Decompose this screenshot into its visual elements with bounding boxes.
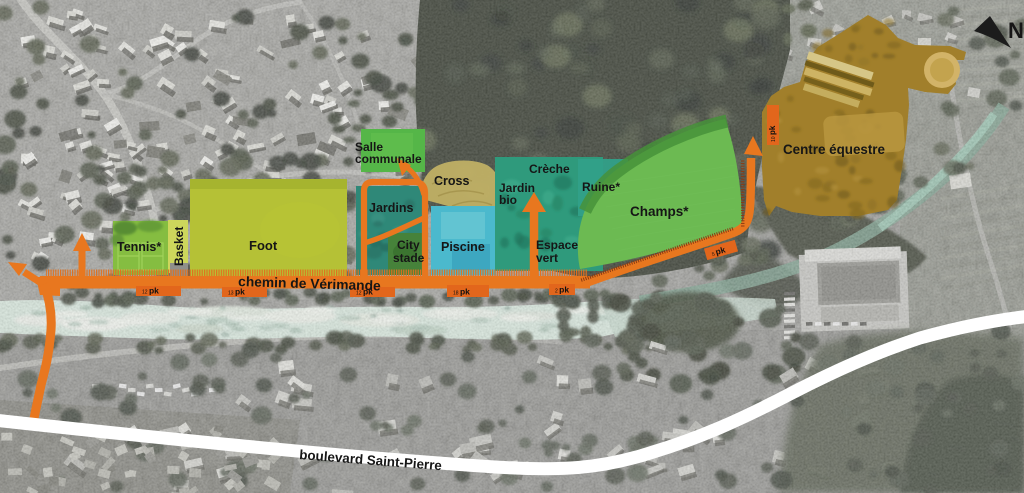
svg-text:vert: vert xyxy=(536,251,558,265)
svg-text:Foot: Foot xyxy=(249,238,278,253)
svg-text:Champs*: Champs* xyxy=(630,204,689,219)
svg-text:Piscine: Piscine xyxy=(441,240,485,254)
svg-text:Jardins: Jardins xyxy=(369,201,414,215)
svg-text:Centre équestre: Centre équestre xyxy=(783,142,885,157)
svg-text:stade: stade xyxy=(393,251,425,265)
svg-text:N: N xyxy=(1008,18,1024,43)
svg-text:Tennis*: Tennis* xyxy=(117,240,161,254)
svg-text:bio: bio xyxy=(499,193,517,207)
svg-text:City: City xyxy=(397,238,420,252)
svg-text:Ruine*: Ruine* xyxy=(582,180,620,194)
svg-text:Crèche: Crèche xyxy=(529,162,570,176)
svg-text:Cross: Cross xyxy=(434,174,469,188)
svg-text:Basket: Basket xyxy=(172,227,186,266)
svg-text:communale: communale xyxy=(355,152,422,166)
svg-text:Espace: Espace xyxy=(536,238,578,252)
